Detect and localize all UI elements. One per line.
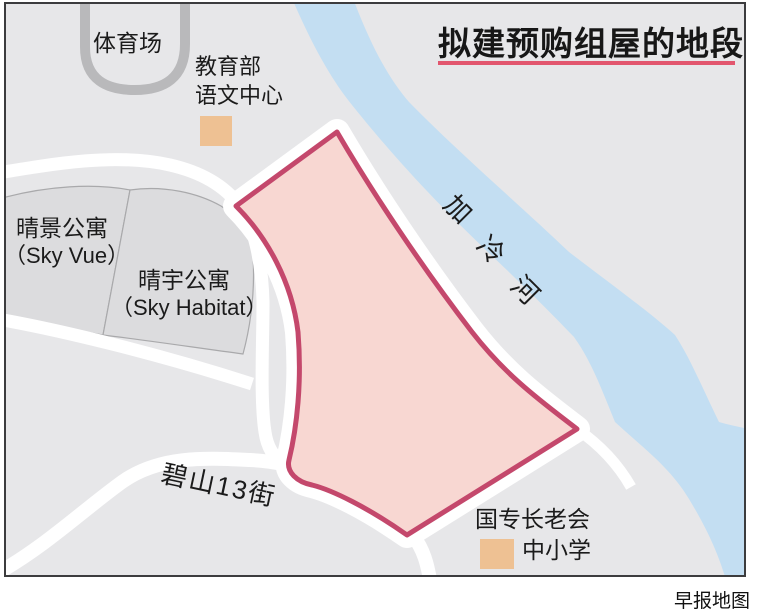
moe-language-centre-label: 教育部 语文中心	[195, 52, 283, 110]
title-underline	[438, 61, 735, 65]
road-riverside-stub	[577, 429, 631, 487]
sky-habitat-label: 晴宇公寓 （Sky Habitat）	[111, 266, 257, 322]
sky-vue-label-cn: 晴景公寓	[4, 215, 120, 242]
map-credit: 早报地图	[674, 586, 750, 613]
sky-habitat-label-en: （Sky Habitat）	[111, 294, 257, 322]
sky-vue-label: 晴景公寓 （Sky Vue）	[4, 215, 120, 269]
school-label: 国专长老会 中小学	[475, 504, 591, 566]
map-title: 拟建预购组屋的地段	[438, 17, 744, 65]
school-label-line2: 中小学	[522, 535, 591, 566]
sky-habitat-label-cn: 晴宇公寓	[111, 266, 257, 294]
moe-label-line2: 语文中心	[195, 81, 283, 110]
map-canvas: 体育场 教育部 语文中心 晴景公寓 （Sky Vue） 晴宇公寓 （Sky Ha…	[4, 2, 746, 577]
sky-vue-label-en: （Sky Vue）	[4, 242, 120, 269]
moe-landmark-square-icon	[200, 116, 232, 146]
stadium-label: 体育场	[93, 24, 162, 58]
moe-label-line1: 教育部	[195, 52, 283, 81]
school-label-line1: 国专长老会	[475, 504, 591, 535]
